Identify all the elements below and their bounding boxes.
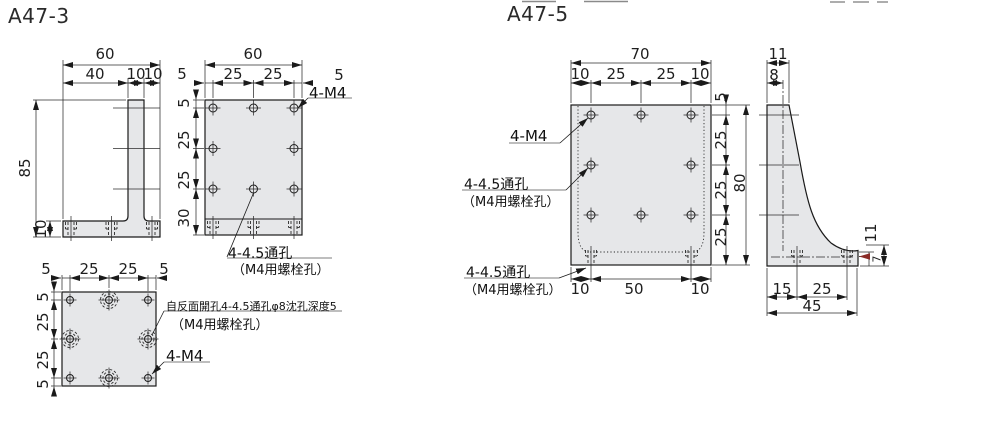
drawing-title-a47-5: A47-5	[507, 2, 569, 26]
dim-a3-bottom-margin-left: 5	[41, 260, 51, 278]
label-a5-front-base-hole-line2: （M4用螺栓孔）	[464, 279, 562, 298]
dim-a3-bottom-v25b: 25	[34, 350, 52, 369]
dim-a3-side-base-10: 10	[32, 219, 50, 238]
dim-a3-side-width-total: 60	[95, 45, 114, 63]
dim-a5-front-pitch2: 25	[656, 65, 675, 83]
dim-a5-side-45: 45	[802, 297, 821, 315]
dim-a3-bottom-pitch2: 25	[118, 260, 137, 278]
dim-a5-front-v25c: 25	[712, 227, 730, 246]
dim-a3-bottom-v5b: 5	[34, 379, 52, 389]
label-a5-front-hole-line2: （M4用螺栓孔）	[462, 191, 560, 210]
a47-3-bottom-view	[51, 275, 342, 395]
dim-a5-front-v25b: 25	[712, 180, 730, 199]
dim-a5-front-v25a: 25	[712, 130, 730, 149]
dim-a5-front-base-10r: 10	[690, 280, 709, 298]
dim-a3-front-margin-right: 5	[334, 66, 344, 84]
cropped-text-fragments	[522, 2, 888, 3]
a47-5-side-view	[759, 60, 889, 316]
dim-a5-side-top-11: 11	[768, 45, 787, 63]
label-a3-bottom-tap: 4-M4	[166, 347, 203, 365]
dim-a5-front-pitch1: 25	[606, 65, 625, 83]
dim-a3-front-pitch1: 25	[223, 65, 242, 83]
label-a3-front-tap: 4-M4	[309, 84, 346, 102]
dim-a5-front-margin-right: 10	[690, 65, 709, 83]
label-a3-bottom-counterbore-line1: 自反面開孔4-4.5通孔φ8沈孔深度5	[166, 298, 337, 314]
dim-a5-front-width-total: 70	[630, 45, 649, 63]
dim-a3-front-v25b: 25	[175, 170, 193, 189]
a47-3-side-view	[33, 60, 160, 241]
dim-a3-bottom-v5a: 5	[34, 292, 52, 302]
label-a5-front-tap: 4-M4	[510, 127, 547, 145]
dim-a3-bottom-margin-right: 5	[159, 260, 169, 278]
dim-a3-side-40: 40	[85, 65, 104, 83]
dim-a3-front-v25a: 25	[175, 130, 193, 149]
dim-a5-side-tip-7: 7	[871, 256, 884, 263]
dim-a5-front-v5: 5	[712, 92, 730, 102]
label-a3-front-hole-line2: （M4用螺栓孔）	[232, 259, 330, 278]
dim-a3-front-width-total: 60	[243, 45, 262, 63]
a47-5-front-view	[462, 60, 750, 282]
dim-a3-bottom-pitch1: 25	[79, 260, 98, 278]
dim-a5-side-15: 15	[772, 280, 791, 298]
dim-a5-side-wall-8: 8	[769, 66, 779, 84]
dim-a5-front-base-50: 50	[624, 280, 643, 298]
dim-a3-front-v30: 30	[175, 208, 193, 227]
dim-a3-bottom-v25a: 25	[34, 312, 52, 331]
dim-a5-front-height-80: 80	[731, 173, 749, 192]
technical-drawing-page: A47-3 A47-5 60 40 10 10 85 10 60 5 25 25…	[0, 0, 1000, 425]
dim-a3-side-10b: 10	[143, 65, 162, 83]
dim-a3-front-margin-left: 5	[177, 65, 187, 83]
drawing-title-a47-3: A47-3	[8, 4, 70, 28]
dim-a5-side-25: 25	[812, 280, 831, 298]
dim-a5-side-tip-11: 11	[862, 223, 880, 242]
dim-a5-front-margin-left: 10	[570, 65, 589, 83]
dim-a3-front-v5: 5	[175, 98, 193, 108]
dim-a3-side-height-85: 85	[16, 158, 34, 177]
dim-a5-front-base-10l: 10	[570, 280, 589, 298]
label-a3-bottom-counterbore-line2: （M4用螺栓孔）	[171, 314, 269, 333]
dim-a3-front-pitch2: 25	[263, 65, 282, 83]
drawing-linework	[0, 0, 1000, 425]
